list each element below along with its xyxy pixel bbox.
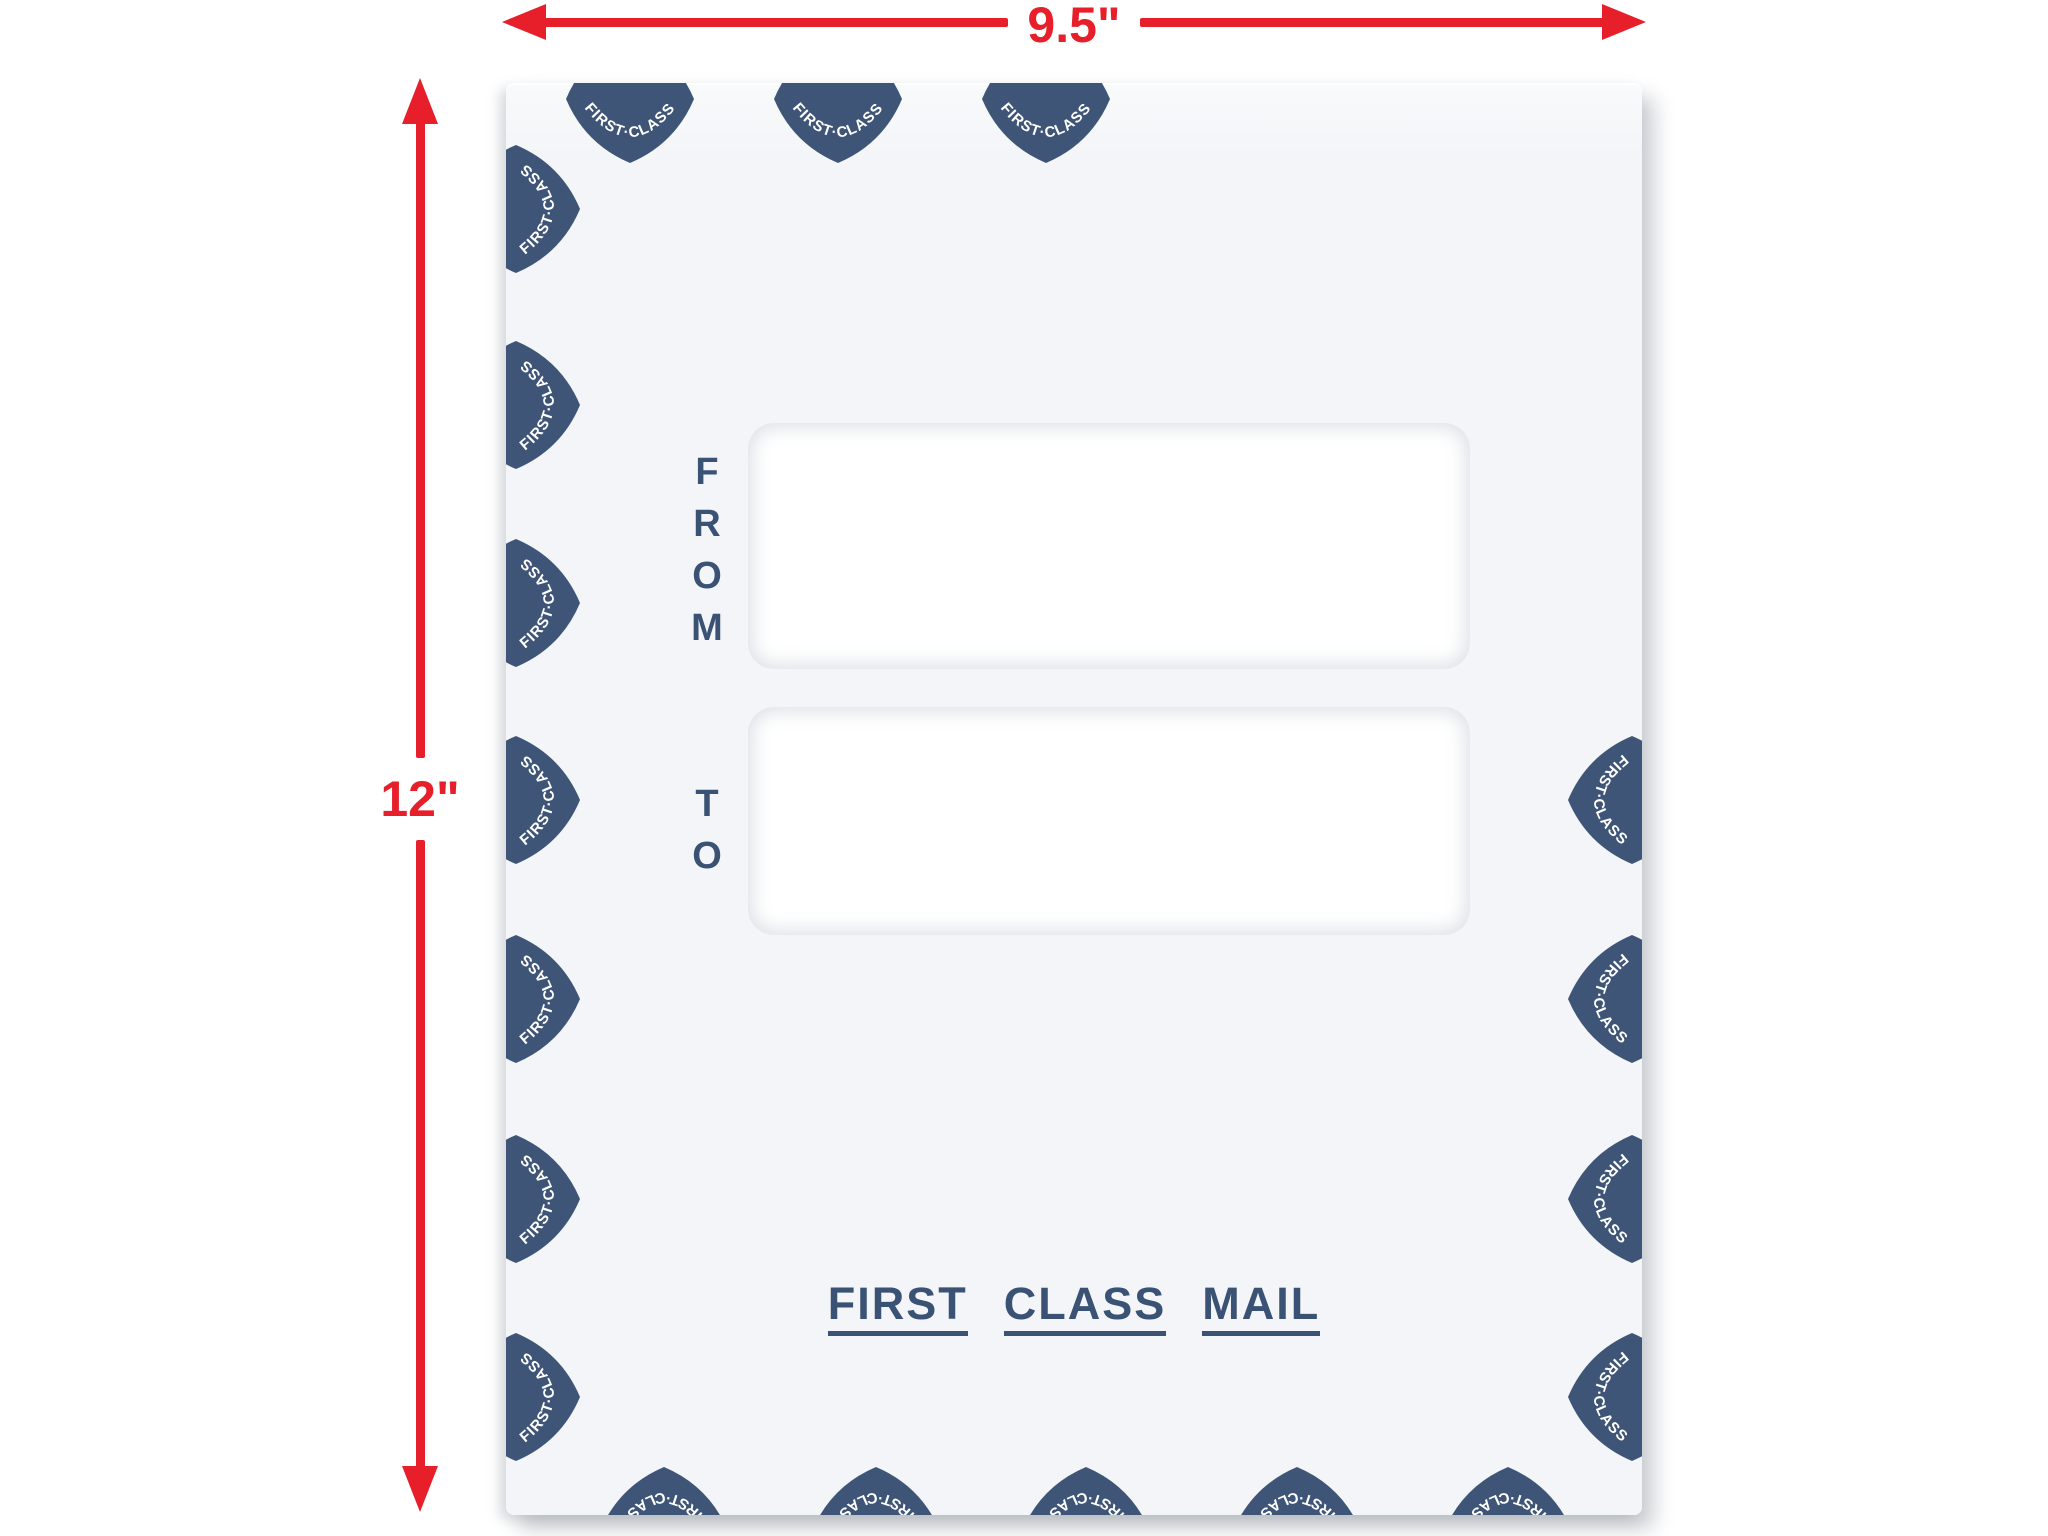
- first-class-badge-icon: FIRST·CLASS: [506, 533, 586, 673]
- envelope: FIRST·CLASSFIRST·CLASSFIRST·CLASSFIRST·C…: [506, 83, 1642, 1515]
- to-address-window: [748, 707, 1470, 935]
- height-arrow-down-icon: [402, 1466, 438, 1512]
- width-arrow-right-icon: [1602, 4, 1646, 40]
- to-label: TO: [688, 783, 726, 887]
- height-dimension-line-top: [416, 120, 425, 758]
- first-class-badge-icon: FIRST·CLASS: [506, 1129, 586, 1269]
- first-class-badge-icon: FIRST·CLASS: [1562, 1327, 1642, 1467]
- first-class-badge-icon: FIRST·CLASS: [768, 83, 908, 169]
- first-class-badge-icon: FIRST·CLASS: [594, 1461, 734, 1515]
- first-class-badge-icon: FIRST·CLASS: [1562, 730, 1642, 870]
- first-class-badge-icon: FIRST·CLASS: [506, 929, 586, 1069]
- width-dimension-label: 9.5": [1004, 0, 1144, 50]
- first-class-badge-icon: FIRST·CLASS: [1562, 929, 1642, 1069]
- first-class-badge-icon: FIRST·CLASS: [506, 139, 586, 279]
- height-dimension-label: 12": [350, 774, 490, 824]
- height-arrow-up-icon: [402, 78, 438, 124]
- first-class-badge-icon: FIRST·CLASS: [1227, 1461, 1367, 1515]
- from-label: FROM: [688, 451, 726, 659]
- first-class-badge-icon: FIRST·CLASS: [806, 1461, 946, 1515]
- first-class-badge-icon: FIRST·CLASS: [1562, 1129, 1642, 1269]
- first-class-badge-icon: FIRST·CLASS: [506, 730, 586, 870]
- width-dimension-line-right: [1140, 18, 1608, 27]
- first-class-badge-icon: FIRST·CLASS: [1016, 1461, 1156, 1515]
- first-class-badge-icon: FIRST·CLASS: [506, 335, 586, 475]
- first-class-badge-icon: FIRST·CLASS: [506, 1327, 586, 1467]
- first-class-badge-icon: FIRST·CLASS: [1438, 1461, 1578, 1515]
- stamp-word-class: CLASS: [1004, 1281, 1167, 1336]
- width-dimension-line-left: [540, 18, 1008, 27]
- stamp-word-mail: MAIL: [1202, 1281, 1320, 1336]
- product-image: 9.5" 12" FIRST·CLASSFIRST·CLASSFIRST·CLA…: [0, 0, 2048, 1536]
- height-dimension-line-bottom: [416, 840, 425, 1470]
- from-address-window: [748, 423, 1470, 669]
- first-class-mail-stamp: FIRST CLASS MAIL: [506, 1281, 1642, 1336]
- stamp-word-first: FIRST: [828, 1281, 968, 1336]
- first-class-badge-icon: FIRST·CLASS: [976, 83, 1116, 169]
